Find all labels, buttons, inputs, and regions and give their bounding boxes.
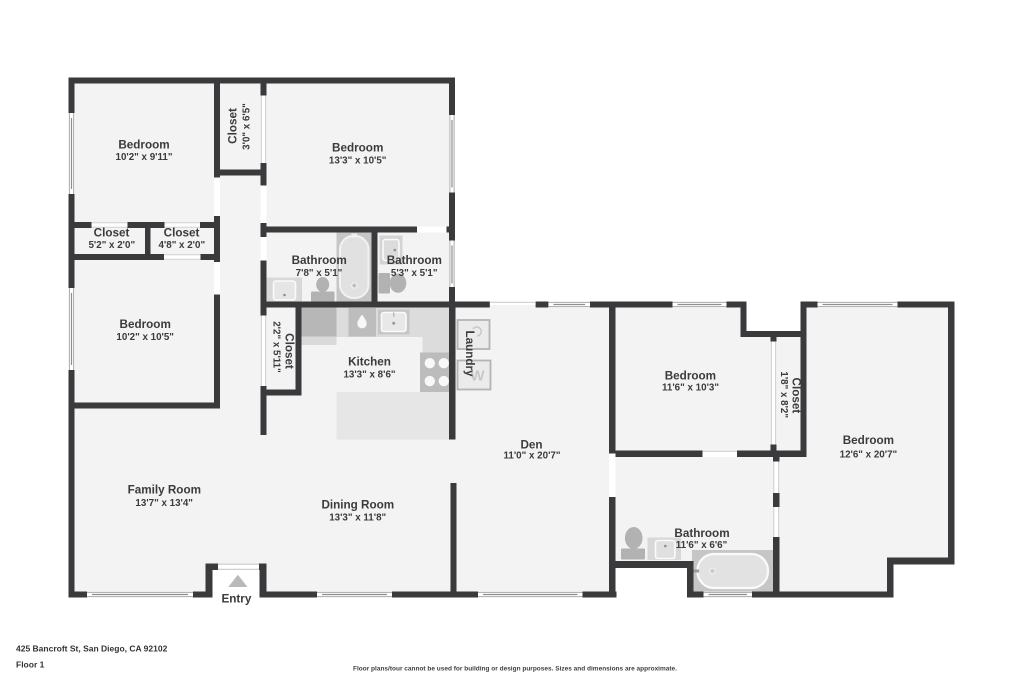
svg-text:5'3" x 5'1": 5'3" x 5'1" [391,268,438,279]
svg-text:13'3" x 11'8": 13'3" x 11'8" [329,512,386,523]
svg-text:Floor 1: Floor 1 [16,660,45,670]
svg-text:Family Room: Family Room [128,484,201,497]
svg-text:Closet: Closet [790,378,803,414]
svg-text:12'6" x 20'7": 12'6" x 20'7" [840,450,898,461]
svg-text:Bathroom: Bathroom [387,254,442,267]
svg-text:10'2" x 9'11": 10'2" x 9'11" [116,152,173,163]
svg-text:Floor plans/tour cannot be use: Floor plans/tour cannot be used for buil… [353,666,677,673]
svg-text:11'0" x 20'7": 11'0" x 20'7" [504,451,561,462]
svg-text:5'2" x 2'0": 5'2" x 2'0" [88,240,135,251]
svg-text:425 Bancroft St, San Diego, CA: 425 Bancroft St, San Diego, CA 92102 [16,644,168,654]
svg-text:11'6" x 10'3": 11'6" x 10'3" [662,382,719,393]
svg-text:Laundry: Laundry [463,330,476,377]
svg-text:Bathroom: Bathroom [292,254,347,267]
svg-text:Closet: Closet [227,108,240,144]
svg-text:Dining Room: Dining Room [321,499,394,512]
svg-text:7'8" x 5'1": 7'8" x 5'1" [296,268,343,279]
svg-text:3'0" x 6'5": 3'0" x 6'5" [241,103,252,150]
svg-text:1'8" x 8'2": 1'8" x 8'2" [778,371,789,418]
svg-text:Den: Den [520,439,542,452]
svg-text:2'2" x 5'11": 2'2" x 5'11" [271,321,282,373]
svg-text:13'3" x 8'6": 13'3" x 8'6" [343,370,395,381]
svg-text:Closet: Closet [283,333,296,369]
svg-text:Kitchen: Kitchen [348,356,391,369]
svg-text:Bathroom: Bathroom [674,527,729,540]
svg-text:Entry: Entry [221,593,251,606]
svg-text:4'8" x 2'0": 4'8" x 2'0" [158,240,205,251]
svg-text:13'7" x 13'4": 13'7" x 13'4" [135,498,193,509]
svg-text:Bedroom: Bedroom [118,139,169,152]
svg-text:Bedroom: Bedroom [332,142,383,155]
svg-text:Closet: Closet [164,227,200,240]
svg-text:Closet: Closet [94,227,130,240]
svg-text:Bedroom: Bedroom [665,370,716,383]
svg-text:13'3" x 10'5": 13'3" x 10'5" [329,156,387,167]
svg-text:Bedroom: Bedroom [843,434,894,447]
svg-text:11'6" x 6'6": 11'6" x 6'6" [676,540,728,551]
svg-text:10'2" x 10'5": 10'2" x 10'5" [116,332,174,343]
svg-text:Bedroom: Bedroom [120,318,171,331]
